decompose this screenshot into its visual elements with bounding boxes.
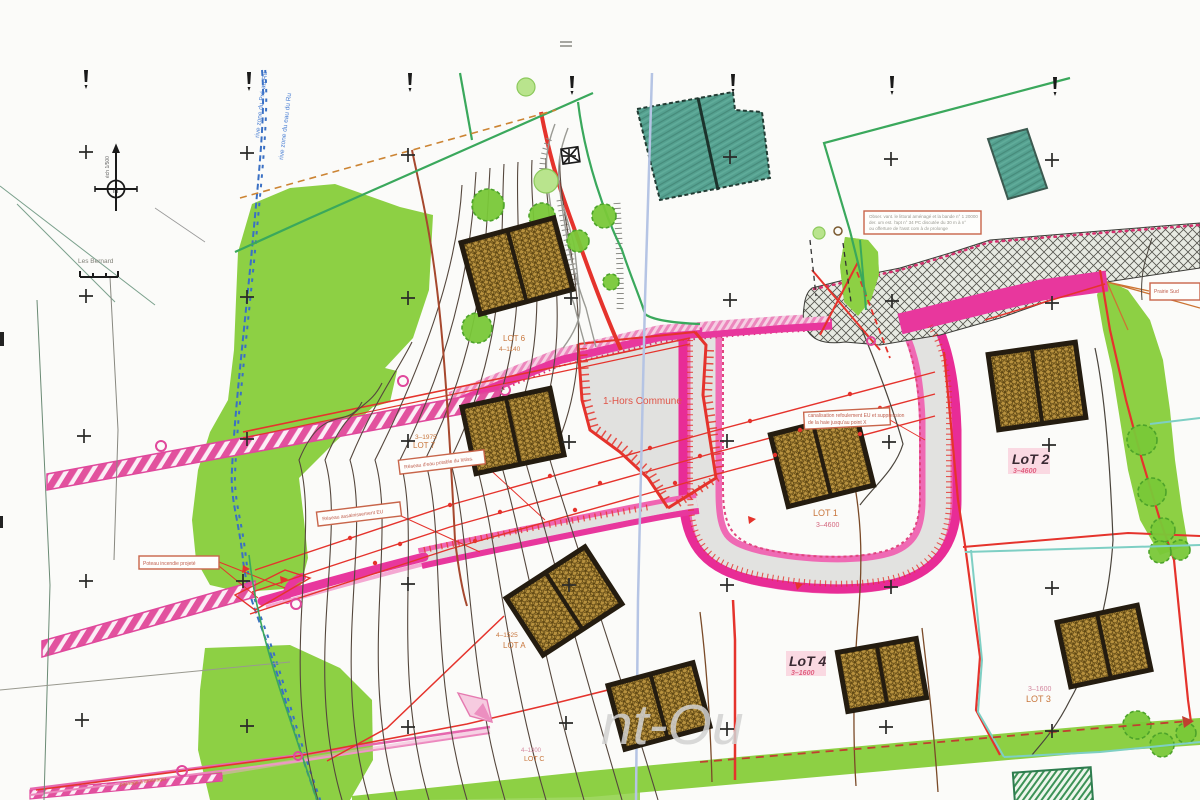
svg-text:4–1300: 4–1300 [521, 748, 542, 754]
svg-text:LOT 7: LOT 7 [413, 441, 436, 450]
svg-text:3–4600: 3–4600 [816, 522, 839, 529]
svg-text:éch 1/500: éch 1/500 [105, 156, 111, 178]
svg-text:Les Bernard: Les Bernard [78, 258, 114, 265]
svg-text:Poteau incendie projeté: Poteau incendie projeté [143, 561, 196, 567]
svg-text:nt-Ou: nt-Ou [601, 693, 744, 757]
svg-text:LoT 4: LoT 4 [789, 653, 827, 669]
svg-text:1-Hors Commune: 1-Hors Commune [603, 396, 682, 407]
svg-text:4–1525: 4–1525 [496, 632, 518, 639]
svg-text:LOT 3: LOT 3 [1026, 694, 1051, 704]
svg-text:3–4600: 3–4600 [1013, 468, 1036, 475]
svg-text:LOT C: LOT C [524, 756, 545, 763]
svg-text:N: N [113, 188, 118, 195]
svg-text:3–1600: 3–1600 [1028, 686, 1051, 693]
svg-text:ou offerture de l'asst com à d: ou offerture de l'asst com à dv prolonge [869, 226, 948, 231]
svg-text:4–1140: 4–1140 [499, 346, 521, 353]
svg-text:LOT 6: LOT 6 [503, 334, 526, 343]
svg-text:3–1975: 3–1975 [415, 434, 437, 441]
svg-text:der. um est. l'apt n° 34 PC di: der. um est. l'apt n° 34 PC discutée du … [869, 220, 966, 225]
svg-text:Obser. vant. le littoral aména: Obser. vant. le littoral aménagé et la b… [869, 214, 978, 219]
svg-text:de la haie jusqu'au point X: de la haie jusqu'au point X [808, 420, 867, 426]
svg-text:LOT 1: LOT 1 [813, 508, 838, 518]
svg-text:Prairie Sud: Prairie Sud [1154, 289, 1179, 295]
svg-text:3–1600: 3–1600 [791, 670, 814, 677]
svg-text:LOT A: LOT A [503, 641, 526, 650]
svg-text:LoT 2: LoT 2 [1012, 451, 1050, 467]
svg-text:canalisation refoulement EU et: canalisation refoulement EU et suppressi… [808, 413, 905, 419]
